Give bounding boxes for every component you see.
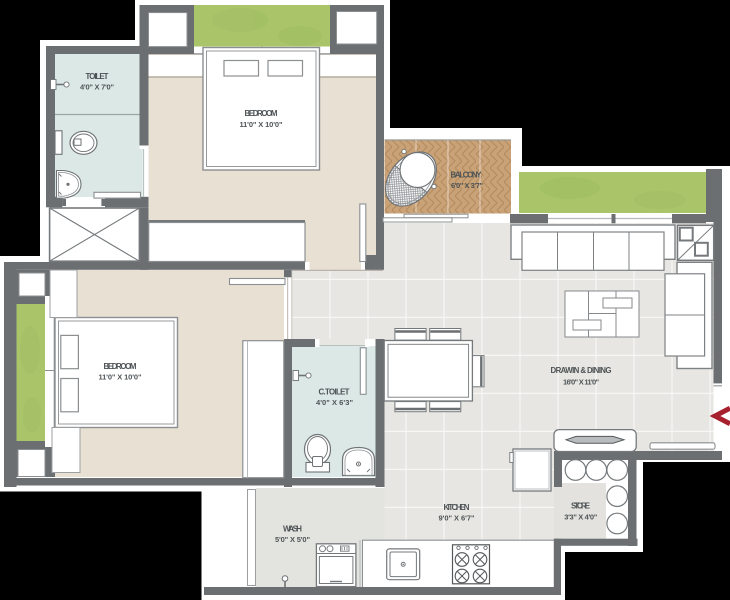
svg-text:BEDROOM: BEDROOM xyxy=(245,109,278,118)
svg-text:11'0" X 10'0": 11'0" X 10'0" xyxy=(240,120,283,129)
svg-text:6'0" X 3'7": 6'0" X 3'7" xyxy=(451,181,483,190)
svg-text:11'0" X 10'0": 11'0" X 10'0" xyxy=(99,373,142,382)
svg-text:C.TOILET: C.TOILET xyxy=(319,387,350,396)
svg-text:WASH: WASH xyxy=(283,524,302,533)
svg-text:3'3" X 4'0": 3'3" X 4'0" xyxy=(564,512,597,521)
svg-text:4'0" X 7'0": 4'0" X 7'0" xyxy=(80,82,114,91)
svg-text:DRAWIN & DINING: DRAWIN & DINING xyxy=(551,366,612,375)
svg-text:KITCHEN: KITCHEN xyxy=(444,503,470,512)
svg-text:5'0" X 5'0": 5'0" X 5'0" xyxy=(275,535,310,544)
svg-text:BEDROOM: BEDROOM xyxy=(104,362,137,371)
svg-text:BALCONY: BALCONY xyxy=(451,170,483,179)
svg-text:4'0" X 6'3": 4'0" X 6'3" xyxy=(316,398,353,407)
svg-text:16'0" X 11'0": 16'0" X 11'0" xyxy=(563,377,599,386)
svg-text:9'0" X 6'7": 9'0" X 6'7" xyxy=(439,513,475,522)
svg-text:TOILET: TOILET xyxy=(86,72,109,81)
svg-text:STORE: STORE xyxy=(571,502,590,511)
